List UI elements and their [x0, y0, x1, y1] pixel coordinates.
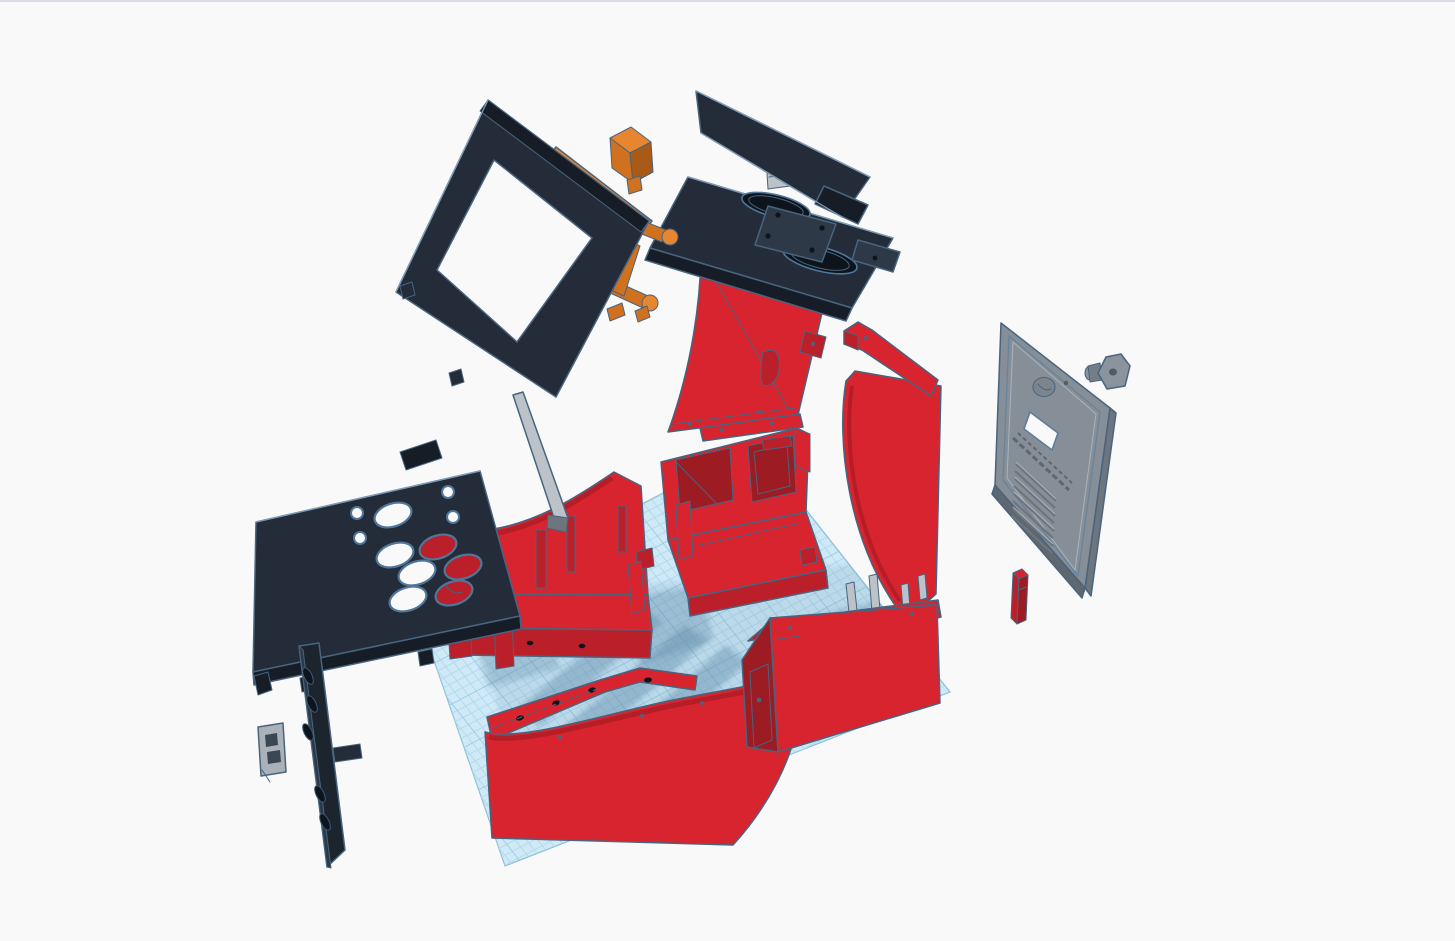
tray-stud	[567, 516, 575, 572]
bar-screw	[770, 421, 774, 425]
door-pin-hole	[1064, 381, 1068, 385]
panel-screw	[811, 342, 815, 346]
bracket-hole	[819, 225, 824, 230]
red-post	[676, 501, 693, 560]
blade-screw	[558, 735, 562, 739]
cad-viewport	[0, 0, 1455, 941]
bracket-hole	[873, 256, 878, 261]
clip-slot	[267, 750, 281, 764]
box-screw	[757, 698, 762, 703]
box-tab	[800, 547, 817, 565]
lock-keyhole	[1109, 369, 1117, 376]
blade-screw	[640, 714, 644, 718]
box-screw	[788, 626, 792, 630]
window-top-border	[0, 0, 1455, 2]
tray-stud	[536, 530, 546, 588]
bracket-screw	[864, 336, 868, 340]
peg	[918, 574, 927, 600]
bracket-hole	[775, 212, 780, 217]
corner-clip[interactable]	[258, 723, 286, 782]
tray-stud	[618, 506, 626, 552]
door-stop[interactable]	[1011, 569, 1028, 624]
box-screw	[910, 612, 914, 616]
button-hole-small	[354, 532, 366, 544]
panel-tab	[418, 649, 434, 666]
clip-slot	[265, 733, 278, 747]
button-hole-small	[447, 511, 459, 523]
blade-screw	[700, 701, 704, 705]
leg-cap	[662, 229, 678, 245]
button-hole-small	[351, 507, 363, 519]
box-corner-post	[795, 428, 810, 472]
bracket-hole	[809, 247, 814, 252]
panel-screw	[758, 410, 762, 414]
panel-screw	[688, 422, 692, 426]
door-knob	[1033, 378, 1055, 397]
bar-screw	[720, 428, 724, 432]
stop-side	[1017, 575, 1028, 624]
button-hole-small	[442, 486, 454, 498]
clip-plate	[258, 723, 286, 776]
bracket-hole	[765, 233, 770, 238]
tray-screw-slot	[527, 641, 534, 645]
tray-screw-slot	[579, 644, 586, 648]
